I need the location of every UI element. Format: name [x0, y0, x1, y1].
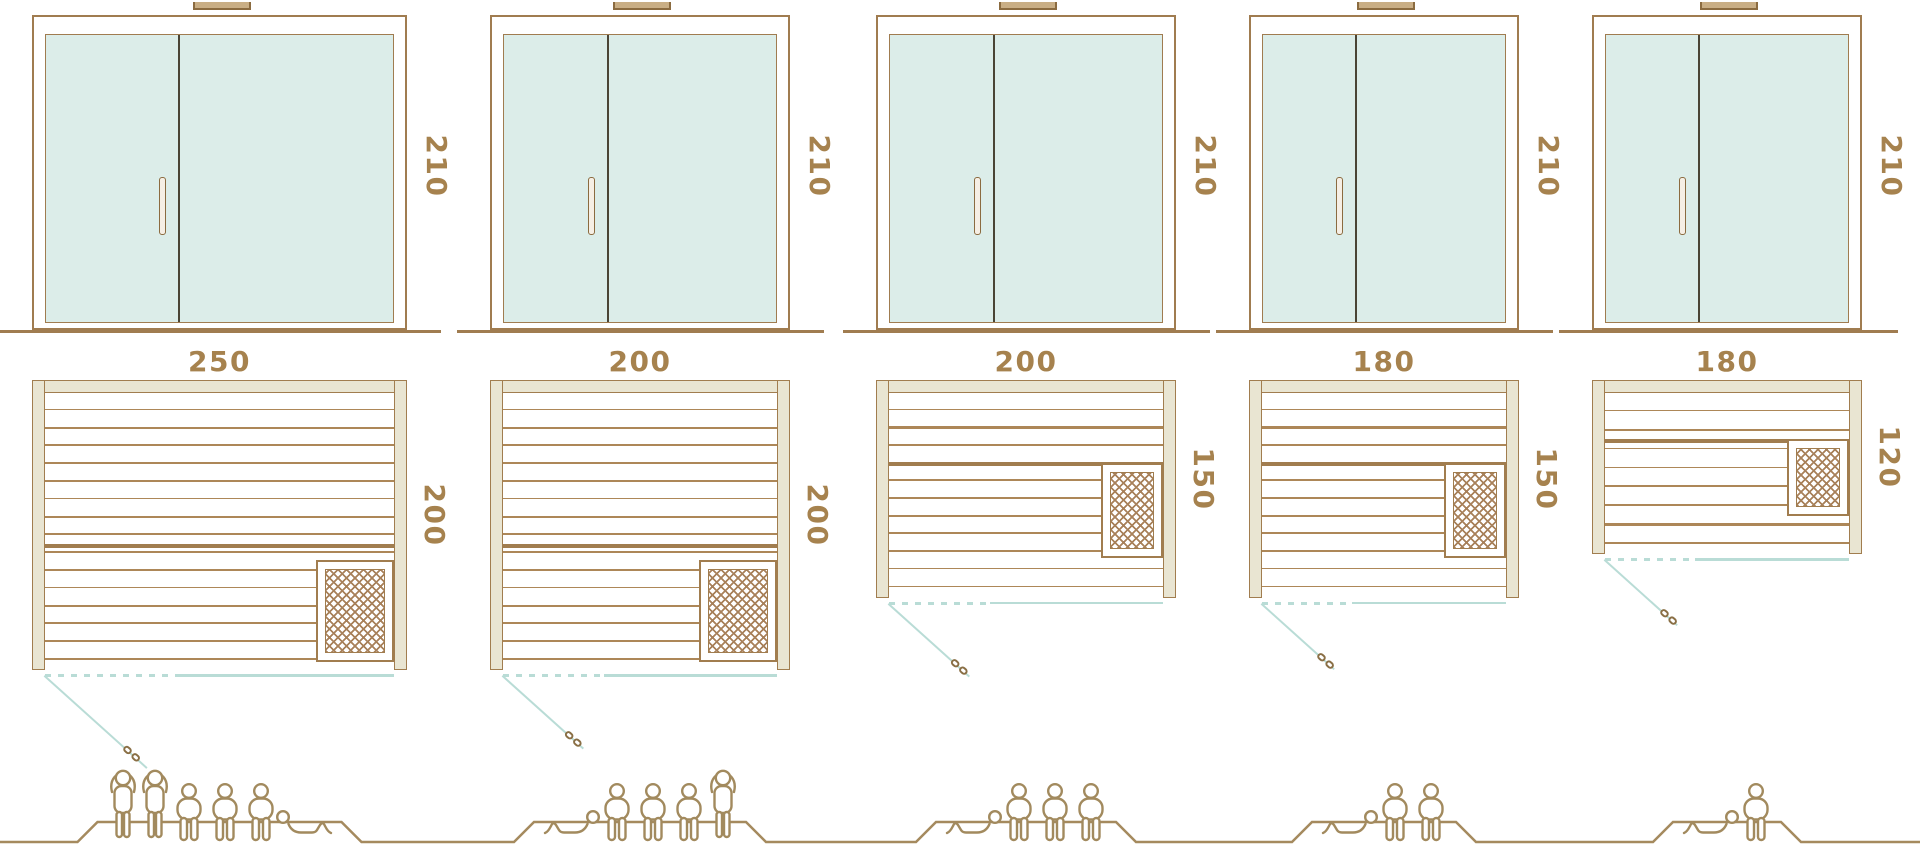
door-divider — [993, 35, 995, 322]
door-handle-icon — [588, 177, 595, 235]
height-label: 210 — [1878, 126, 1906, 206]
heater-icon — [708, 569, 768, 653]
bench-plank-line — [1262, 444, 1506, 446]
roof-vent-icon — [1357, 2, 1415, 10]
sauna-180x120-plan — [1592, 380, 1862, 554]
person-seated-icon — [1080, 784, 1103, 840]
roof-vent-icon — [999, 2, 1057, 10]
sauna-250x200-plan — [32, 380, 407, 670]
person-seated-icon — [177, 784, 200, 840]
depth-label: 120 — [1876, 417, 1904, 497]
bench-edge-line — [45, 544, 394, 548]
handle-grip — [958, 665, 969, 676]
door-leaf-dashed-line — [889, 602, 990, 605]
door-leaf-dashed-line — [1605, 558, 1695, 561]
door-ground-line — [843, 330, 1210, 333]
plan-wall-top — [32, 380, 407, 393]
plan-wall-right — [1849, 380, 1862, 554]
bench-plank-line — [503, 498, 777, 500]
heater-bench — [1787, 439, 1849, 516]
door-glass — [1605, 34, 1849, 323]
door-swing-line — [1261, 603, 1335, 670]
plan-wall-right — [1163, 380, 1176, 598]
bench-plank-line — [503, 480, 777, 482]
bench-plank-line — [503, 409, 777, 411]
sauna-200x200-plan — [490, 380, 790, 670]
width-label: 180 — [1249, 346, 1519, 376]
person-standing-icon — [711, 771, 735, 837]
handle-grip — [572, 737, 583, 748]
glass-front-line — [604, 674, 777, 677]
plan-wall-left — [876, 380, 889, 598]
swing-handle-icon — [1316, 651, 1336, 670]
glass-front-line — [1695, 558, 1849, 561]
door-divider — [607, 35, 609, 322]
heater-icon — [325, 569, 385, 653]
person-seated-icon — [249, 784, 272, 840]
door-divider — [1698, 35, 1700, 322]
depth-label: 150 — [1190, 439, 1218, 519]
door-leaf-dashed-line — [45, 674, 175, 677]
height-label: 210 — [806, 126, 834, 206]
door-elevation-5 — [1592, 15, 1862, 330]
person-lying-icon — [1684, 811, 1738, 833]
heater-bench — [1101, 463, 1163, 559]
bench-plank-line — [503, 533, 777, 535]
bench-plank-line — [45, 427, 394, 430]
bench-plank-line — [889, 568, 1163, 570]
person-seated-icon — [678, 784, 701, 840]
door-swing-line — [888, 603, 970, 677]
sauna-200x150-plan — [876, 380, 1176, 598]
bench-plank-line — [45, 516, 394, 519]
person-seated-icon — [1384, 784, 1407, 840]
person-lying-icon — [545, 811, 599, 833]
door-glass — [503, 34, 777, 323]
plan-wall-right — [1506, 380, 1519, 598]
sauna-180x150-plan — [1249, 380, 1519, 598]
bench-plank-line — [1262, 568, 1506, 570]
bench-edge-line — [503, 544, 777, 548]
plan-wall-top — [1592, 380, 1862, 393]
height-label: 210 — [1192, 126, 1220, 206]
bench-plank-line — [1262, 586, 1506, 588]
roof-vent-icon — [613, 2, 671, 10]
bench-plank-line — [45, 498, 394, 500]
bench-plank-line — [503, 516, 777, 519]
person-seated-icon — [1008, 784, 1031, 840]
door-elevation-2 — [490, 15, 790, 330]
door-elevation-1 — [32, 15, 407, 330]
door-handle-icon — [1679, 177, 1686, 235]
person-seated-icon — [1745, 784, 1768, 840]
person-lying-icon — [277, 811, 331, 833]
roof-vent-icon — [1700, 2, 1758, 10]
plan-wall-right — [777, 380, 790, 670]
bench-plank-line — [1605, 410, 1849, 412]
swing-handle-icon — [1659, 608, 1679, 627]
glass-front-line — [990, 602, 1163, 605]
bench-plank-line — [889, 409, 1163, 411]
width-label: 250 — [32, 346, 407, 376]
bench-plank-line — [889, 586, 1163, 588]
bench-plank-line — [45, 551, 394, 553]
width-label: 200 — [876, 346, 1176, 376]
person-lying-icon — [1323, 811, 1377, 833]
roof-vent-icon — [193, 2, 251, 10]
bench-plank-line — [889, 444, 1163, 446]
door-leaf-dashed-line — [503, 674, 604, 677]
bench-plank-line — [1605, 542, 1849, 544]
door-leaf-dashed-line — [1262, 602, 1352, 605]
door-swing-line — [44, 675, 148, 768]
plan-wall-left — [1592, 380, 1605, 554]
people-group-2 — [1597, 760, 1857, 852]
door-ground-line — [0, 330, 441, 333]
handle-grip — [1667, 615, 1678, 626]
depth-label: 200 — [804, 475, 832, 555]
door-divider — [1355, 35, 1357, 322]
door-elevation-4 — [1249, 15, 1519, 330]
bench-plank-line — [1605, 523, 1849, 526]
door-divider — [178, 35, 180, 322]
door-handle-icon — [159, 177, 166, 235]
bench-plank-line — [503, 427, 777, 430]
door-handle-icon — [974, 177, 981, 235]
door-swing-line — [1604, 559, 1678, 626]
bench-plank-line — [889, 426, 1163, 429]
plan-wall-right — [394, 380, 407, 670]
height-label: 210 — [1535, 126, 1563, 206]
heater-bench — [1444, 463, 1506, 559]
person-lying-icon — [947, 811, 1001, 833]
bench-plank-line — [503, 551, 777, 553]
people-group-3 — [1254, 760, 1514, 852]
width-label: 180 — [1592, 346, 1862, 376]
width-label: 200 — [490, 346, 790, 376]
plan-wall-left — [32, 380, 45, 670]
people-group-6 — [90, 760, 350, 852]
person-seated-icon — [1420, 784, 1443, 840]
sauna-size-diagram: 2102502002102002002102001502101801502101… — [0, 0, 1920, 856]
door-elevation-3 — [876, 15, 1176, 330]
depth-label: 150 — [1533, 439, 1561, 519]
bench-plank-line — [1262, 409, 1506, 411]
bench-plank-line — [45, 533, 394, 535]
door-swing-line — [502, 675, 584, 749]
heater-bench — [699, 560, 777, 662]
door-glass — [45, 34, 394, 323]
bench-plank-line — [45, 409, 394, 411]
bench-plank-line — [45, 480, 394, 482]
depth-label: 200 — [421, 475, 449, 555]
heater-icon — [1453, 472, 1497, 550]
person-seated-icon — [642, 784, 665, 840]
door-glass — [889, 34, 1163, 323]
bench-plank-line — [45, 462, 394, 464]
bench-plank-line — [503, 462, 777, 464]
person-standing-icon — [111, 771, 135, 837]
bench-plank-line — [503, 444, 777, 446]
plan-wall-left — [1249, 380, 1262, 598]
person-seated-icon — [213, 784, 236, 840]
people-group-5 — [510, 760, 770, 852]
bench-plank-line — [1605, 429, 1849, 432]
door-ground-line — [1559, 330, 1898, 333]
handle-grip — [1324, 659, 1335, 670]
person-seated-icon — [1044, 784, 1067, 840]
plan-wall-left — [490, 380, 503, 670]
heater-icon — [1110, 472, 1154, 550]
bench-plank-line — [1262, 426, 1506, 429]
door-ground-line — [1216, 330, 1553, 333]
glass-front-line — [1352, 602, 1506, 605]
people-group-4 — [896, 760, 1156, 852]
door-ground-line — [457, 330, 824, 333]
heater-bench — [316, 560, 394, 662]
person-seated-icon — [606, 784, 629, 840]
plan-wall-top — [490, 380, 790, 393]
plan-wall-top — [1249, 380, 1519, 393]
swing-handle-icon — [564, 730, 584, 749]
heater-icon — [1796, 448, 1840, 507]
swing-handle-icon — [950, 657, 970, 676]
plan-wall-top — [876, 380, 1176, 393]
height-label: 210 — [423, 126, 451, 206]
glass-front-line — [175, 674, 395, 677]
door-glass — [1262, 34, 1506, 323]
person-standing-icon — [143, 771, 167, 837]
door-handle-icon — [1336, 177, 1343, 235]
bench-plank-line — [45, 444, 394, 446]
